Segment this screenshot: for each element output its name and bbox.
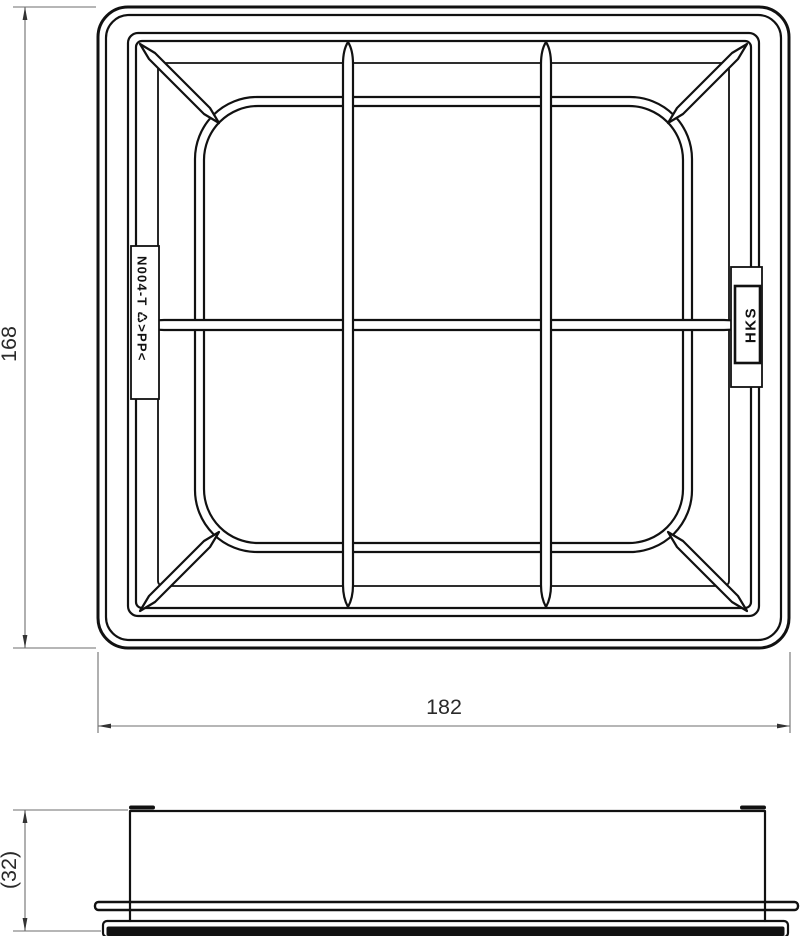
arrow-left-icon bbox=[98, 724, 111, 729]
top-view: N004-T ♺>PP< HKS bbox=[98, 7, 789, 648]
arrow-up-icon bbox=[23, 7, 28, 20]
corner-rib-top-left bbox=[140, 44, 219, 123]
dimension-width-182: 182 bbox=[98, 652, 790, 733]
technical-drawing: N004-T ♺>PP< HKS 168 182 bbox=[0, 0, 800, 936]
dimension-height-168: 168 bbox=[0, 7, 96, 648]
brand-label: HKS bbox=[743, 307, 760, 343]
drawing-sheet: N004-T ♺>PP< HKS 168 182 bbox=[0, 0, 800, 936]
part-number-label: N004-T ♺>PP< bbox=[135, 256, 150, 362]
arrow-right-icon bbox=[777, 724, 790, 729]
corner-rib-top-right bbox=[668, 44, 747, 123]
arrow-down-icon bbox=[23, 918, 28, 931]
side-view bbox=[95, 808, 798, 936]
seal-flange bbox=[95, 902, 798, 910]
vertical-rib-left bbox=[343, 42, 353, 607]
corner-rib-bottom-left bbox=[140, 532, 219, 611]
filter-element-fill bbox=[107, 927, 785, 936]
vertical-rib-right bbox=[541, 42, 551, 607]
dimension-side-height-32: (32) bbox=[0, 810, 128, 931]
horizontal-rib bbox=[140, 320, 748, 330]
arrow-down-icon bbox=[23, 635, 28, 648]
arrow-up-icon bbox=[23, 810, 28, 823]
dim-width-label: 182 bbox=[426, 695, 462, 719]
dim-side-height-label: (32) bbox=[0, 851, 21, 889]
dim-height-label: 168 bbox=[0, 326, 21, 362]
corner-rib-bottom-right bbox=[668, 532, 747, 611]
